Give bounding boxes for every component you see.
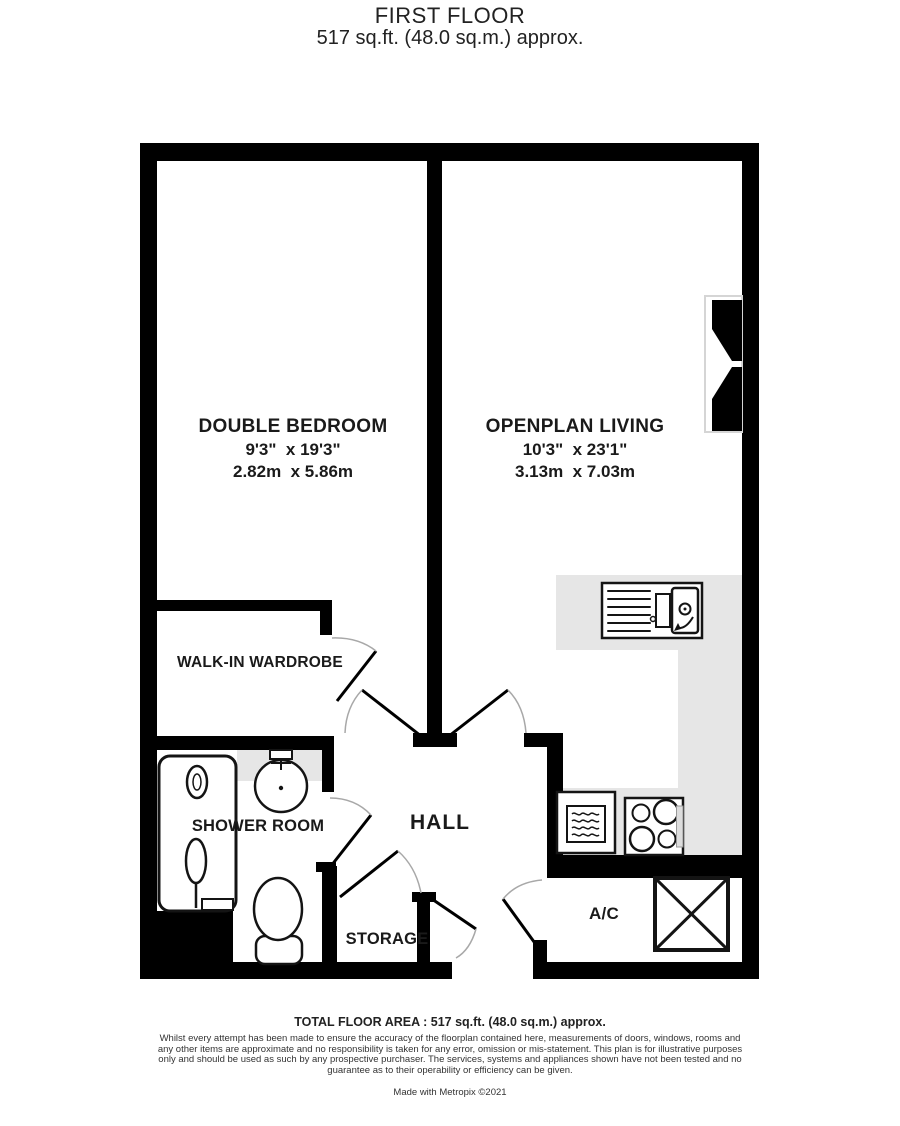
credit-text: Made with Metropix ©2021 [0,1087,900,1098]
total-floor-area: TOTAL FLOOR AREA : 517 sq.ft. (48.0 sq.m… [0,1015,900,1029]
bedroom-name: DOUBLE BEDROOM [158,416,428,439]
window-icon [705,296,742,432]
floor-title: FIRST FLOOR [0,3,900,29]
hob-icon [625,798,683,855]
living-dimensions-metric: 3.13m x 7.03m [440,461,710,484]
bedroom-dimensions-metric: 2.82m x 5.86m [158,461,428,484]
living-name: OPENPLAN LIVING [440,416,710,439]
bedroom-dimensions-imperial: 9'3" x 19'3" [158,439,428,462]
room-label-ac: A/C [569,904,639,924]
room-label-bedroom: DOUBLE BEDROOM 9'3" x 19'3" 2.82m x 5.86… [158,416,428,484]
room-label-shower: SHOWER ROOM [158,817,358,836]
bedroom-door [345,690,421,736]
toilet-icon [254,878,302,964]
room-label-living: OPENPLAN LIVING 10'3" x 23'1" 3.13m x 7.… [440,416,710,484]
microwave-icon [557,792,615,853]
room-label-wardrobe: WALK-IN WARDROBE [160,654,360,672]
floor-area-subtitle: 517 sq.ft. (48.0 sq.m.) approx. [0,27,900,50]
room-label-storage: STORAGE [335,930,439,949]
floorplan-drawing [0,0,900,1126]
kitchen-sink-icon [602,583,702,638]
storage-door [340,851,421,897]
living-door [449,690,526,736]
disclaimer-text: Whilst every attempt has been made to en… [157,1034,743,1076]
living-dimensions-imperial: 10'3" x 23'1" [440,439,710,462]
room-label-hall: HALL [378,811,502,835]
ac-unit-icon [655,878,728,950]
